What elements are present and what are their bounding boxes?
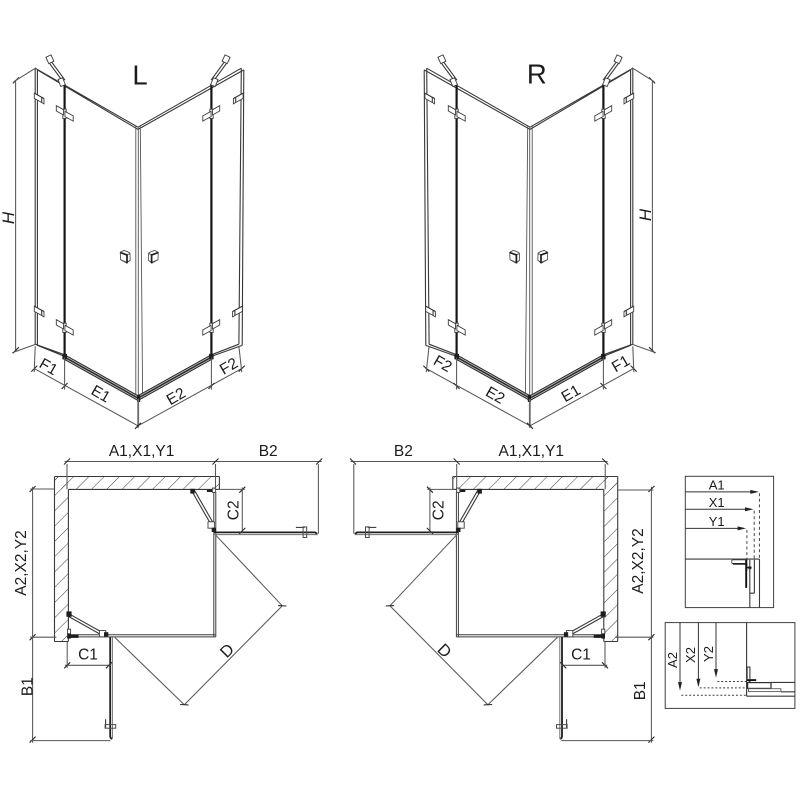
svg-text:R: R (527, 59, 547, 90)
svg-text:B2: B2 (259, 443, 278, 460)
svg-text:A1,X1,Y1: A1,X1,Y1 (499, 443, 565, 460)
svg-text:F1: F1 (609, 352, 633, 376)
svg-text:A2,X2,Y2: A2,X2,Y2 (13, 530, 30, 596)
svg-text:Y1: Y1 (709, 514, 725, 529)
svg-text:B2: B2 (394, 443, 413, 460)
svg-text:X2: X2 (683, 647, 698, 663)
svg-text:C1: C1 (571, 647, 591, 664)
svg-text:F1: F1 (36, 355, 60, 379)
svg-text:C2: C2 (225, 500, 242, 520)
svg-text:E1: E1 (88, 382, 113, 406)
svg-text:B1: B1 (632, 681, 649, 700)
svg-text:Y2: Y2 (701, 646, 716, 662)
svg-text:A2: A2 (665, 652, 680, 668)
svg-text:D: D (434, 640, 455, 661)
svg-text:A1: A1 (709, 477, 725, 492)
svg-text:A2,X2,Y2: A2,X2,Y2 (630, 528, 647, 594)
svg-text:H: H (0, 211, 18, 224)
svg-text:E1: E1 (559, 382, 584, 406)
svg-text:X1: X1 (709, 495, 725, 510)
svg-text:E2: E2 (482, 384, 507, 408)
svg-text:E2: E2 (164, 385, 189, 409)
svg-text:B1: B1 (20, 677, 37, 696)
svg-text:F2: F2 (217, 355, 241, 379)
svg-text:C2: C2 (431, 500, 448, 520)
svg-text:L: L (132, 59, 147, 90)
svg-text:H: H (636, 208, 655, 221)
svg-text:D: D (217, 640, 238, 661)
svg-text:C1: C1 (78, 647, 98, 664)
svg-text:A1,X1,Y1: A1,X1,Y1 (109, 443, 175, 460)
